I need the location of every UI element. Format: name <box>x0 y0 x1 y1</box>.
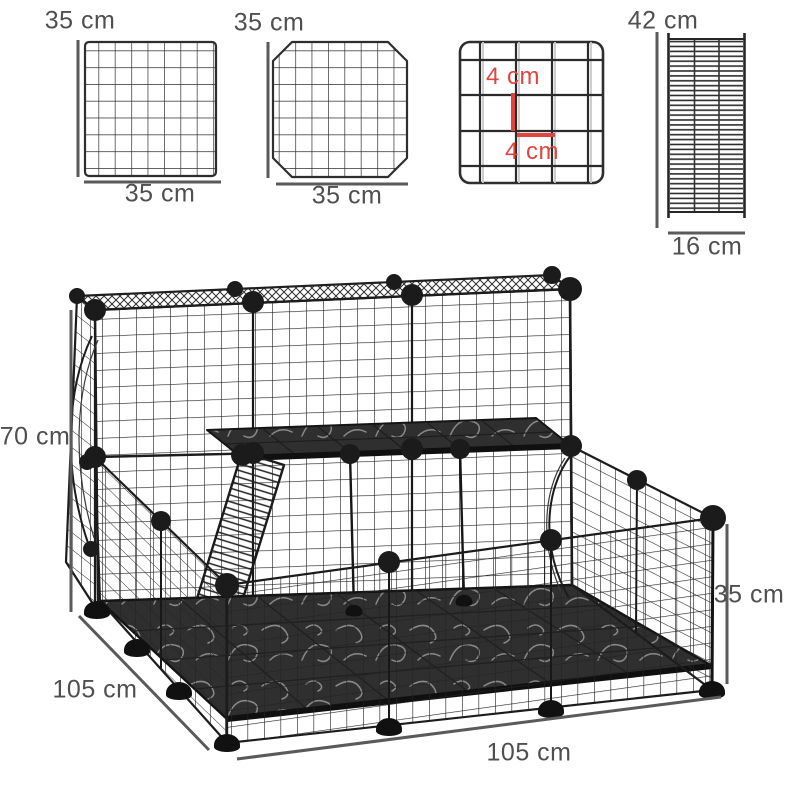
ramp-height-label: 42 cm <box>628 7 699 36</box>
square-panel-height-label: 35 cm <box>45 7 116 36</box>
door-panel-diagram <box>268 42 408 184</box>
square-panel-diagram <box>78 40 221 182</box>
cage-illustration <box>66 266 726 752</box>
square-panel-width-label: 35 cm <box>125 180 196 209</box>
cage-width-label: 105 cm <box>487 739 572 768</box>
door-panel-width-label: 35 cm <box>312 182 383 211</box>
mesh-cell-height-label: 4 cm <box>486 63 540 91</box>
product-dimension-diagram: 35 cm 35 cm 35 cm 35 cm 4 cm 4 cm 42 cm … <box>0 0 800 800</box>
ramp-panel-diagram <box>657 32 745 233</box>
mesh-cell-width-label: 4 cm <box>505 138 559 166</box>
cage-depth-label: 105 cm <box>53 676 138 705</box>
ramp-width-label: 16 cm <box>672 233 743 262</box>
door-panel-height-label: 35 cm <box>234 9 305 38</box>
cage-height-label: 70 cm <box>0 423 70 452</box>
fence-height-label: 35 cm <box>714 581 785 610</box>
